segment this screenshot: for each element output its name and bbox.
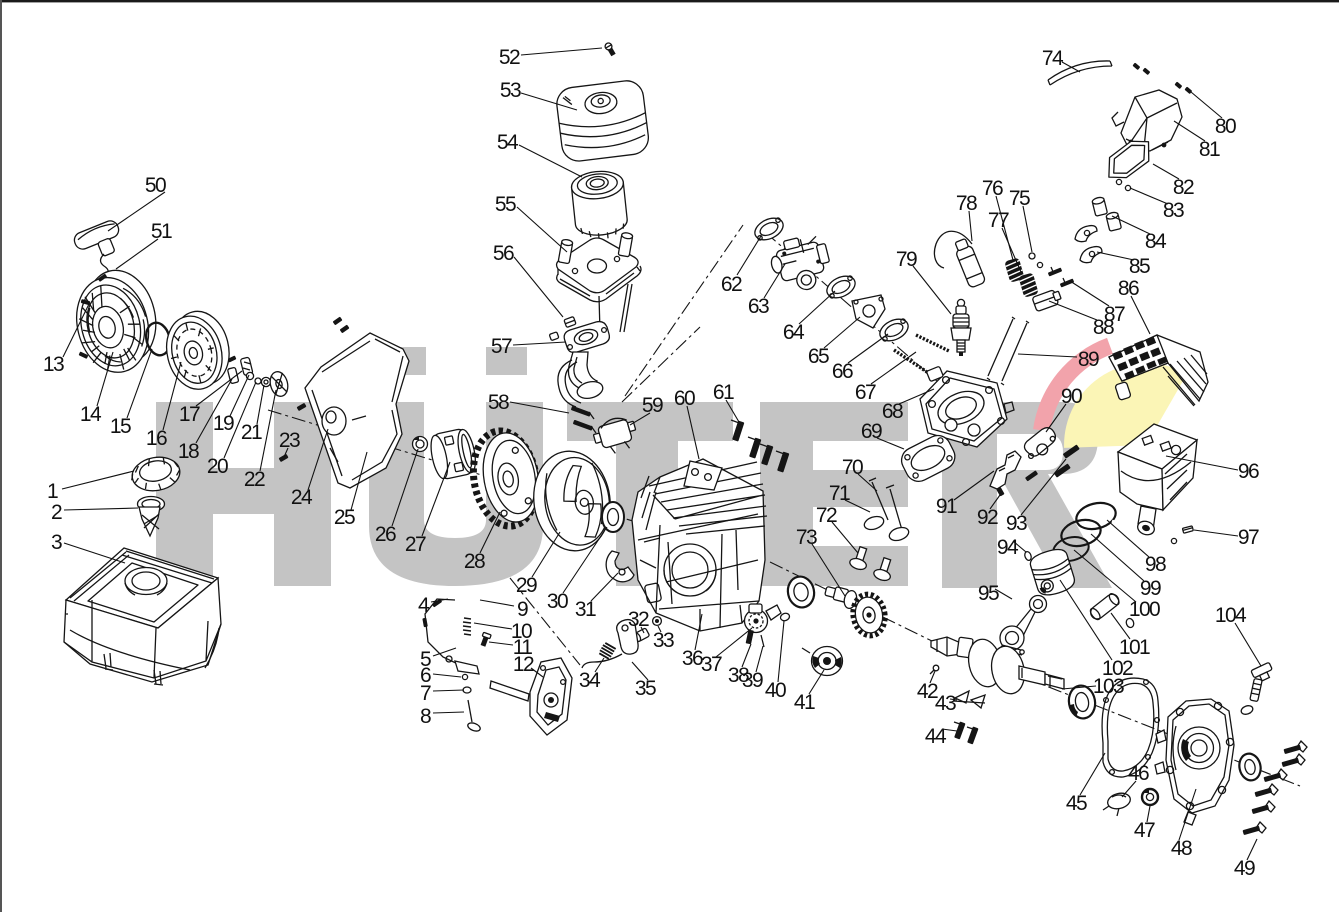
svg-text:37: 37 (701, 653, 722, 676)
svg-text:84: 84 (1145, 230, 1167, 253)
svg-text:55: 55 (495, 193, 516, 216)
svg-text:81: 81 (1199, 138, 1220, 161)
svg-text:77: 77 (988, 209, 1009, 232)
svg-text:94: 94 (997, 536, 1019, 559)
svg-text:70: 70 (842, 456, 863, 479)
svg-text:66: 66 (832, 360, 853, 383)
svg-text:88: 88 (1093, 316, 1114, 339)
svg-text:89: 89 (1078, 348, 1099, 371)
svg-text:26: 26 (375, 523, 396, 546)
svg-text:100: 100 (1129, 598, 1160, 621)
svg-text:61: 61 (713, 381, 734, 404)
svg-text:22: 22 (244, 468, 265, 491)
svg-text:62: 62 (721, 273, 742, 296)
svg-text:54: 54 (497, 131, 519, 154)
svg-text:78: 78 (956, 192, 977, 215)
svg-text:15: 15 (110, 415, 131, 438)
svg-text:40: 40 (765, 679, 786, 702)
svg-text:73: 73 (796, 526, 817, 549)
svg-text:25: 25 (334, 506, 355, 529)
svg-text:51: 51 (151, 220, 172, 243)
svg-text:57: 57 (491, 335, 512, 358)
svg-text:74: 74 (1042, 47, 1064, 70)
svg-text:71: 71 (829, 482, 850, 505)
svg-text:59: 59 (642, 394, 663, 417)
svg-text:48: 48 (1171, 837, 1192, 860)
svg-text:20: 20 (207, 455, 228, 478)
svg-text:90: 90 (1061, 385, 1082, 408)
svg-text:85: 85 (1129, 255, 1150, 278)
svg-text:2: 2 (51, 501, 62, 524)
svg-text:60: 60 (674, 387, 695, 410)
svg-text:21: 21 (241, 421, 262, 444)
svg-text:92: 92 (977, 506, 998, 529)
svg-text:72: 72 (816, 504, 837, 527)
svg-text:64: 64 (783, 321, 805, 344)
svg-text:47: 47 (1134, 819, 1155, 842)
svg-text:53: 53 (500, 79, 521, 102)
svg-text:80: 80 (1215, 115, 1236, 138)
svg-text:13: 13 (43, 353, 64, 376)
svg-text:12: 12 (513, 653, 534, 676)
svg-text:82: 82 (1173, 176, 1194, 199)
svg-text:91: 91 (936, 495, 957, 518)
svg-text:68: 68 (882, 400, 903, 423)
svg-text:104: 104 (1215, 604, 1247, 627)
svg-text:30: 30 (547, 590, 568, 613)
svg-text:39: 39 (742, 669, 763, 692)
svg-text:14: 14 (80, 403, 102, 426)
svg-text:3: 3 (51, 531, 62, 554)
svg-text:18: 18 (178, 440, 199, 463)
svg-text:32: 32 (628, 608, 649, 631)
svg-text:46: 46 (1128, 762, 1149, 785)
svg-text:65: 65 (808, 345, 829, 368)
svg-text:52: 52 (499, 46, 520, 69)
svg-text:97: 97 (1238, 526, 1259, 549)
svg-text:9: 9 (517, 598, 528, 621)
svg-text:27: 27 (405, 533, 426, 556)
svg-text:34: 34 (579, 669, 601, 692)
svg-text:76: 76 (982, 177, 1003, 200)
svg-text:75: 75 (1009, 187, 1030, 210)
svg-text:17: 17 (179, 403, 200, 426)
svg-text:99: 99 (1140, 577, 1161, 600)
svg-text:69: 69 (861, 420, 882, 443)
svg-text:44: 44 (925, 725, 947, 748)
svg-text:96: 96 (1238, 460, 1259, 483)
svg-text:98: 98 (1145, 553, 1166, 576)
svg-text:29: 29 (516, 574, 537, 597)
svg-text:45: 45 (1066, 792, 1087, 815)
svg-text:49: 49 (1234, 857, 1255, 880)
svg-text:58: 58 (488, 391, 509, 414)
svg-text:1: 1 (47, 480, 58, 503)
svg-text:86: 86 (1118, 277, 1139, 300)
svg-text:36: 36 (682, 647, 703, 670)
svg-text:56: 56 (493, 242, 514, 265)
svg-text:41: 41 (794, 691, 815, 714)
svg-text:95: 95 (978, 582, 999, 605)
svg-text:79: 79 (896, 248, 917, 271)
svg-text:8: 8 (420, 705, 431, 728)
svg-text:103: 103 (1093, 675, 1124, 698)
svg-text:19: 19 (213, 412, 234, 435)
svg-text:23: 23 (279, 429, 300, 452)
svg-text:93: 93 (1006, 512, 1027, 535)
svg-text:7: 7 (420, 682, 431, 705)
svg-text:63: 63 (748, 295, 769, 318)
svg-text:35: 35 (635, 677, 656, 700)
svg-text:67: 67 (855, 381, 876, 404)
svg-text:33: 33 (653, 629, 674, 652)
svg-text:24: 24 (291, 486, 313, 509)
svg-text:43: 43 (935, 692, 956, 715)
svg-text:16: 16 (146, 427, 167, 450)
svg-text:101: 101 (1119, 636, 1150, 659)
svg-text:50: 50 (145, 174, 166, 197)
svg-text:83: 83 (1163, 199, 1184, 222)
svg-text:31: 31 (575, 598, 596, 621)
svg-text:28: 28 (464, 550, 485, 573)
